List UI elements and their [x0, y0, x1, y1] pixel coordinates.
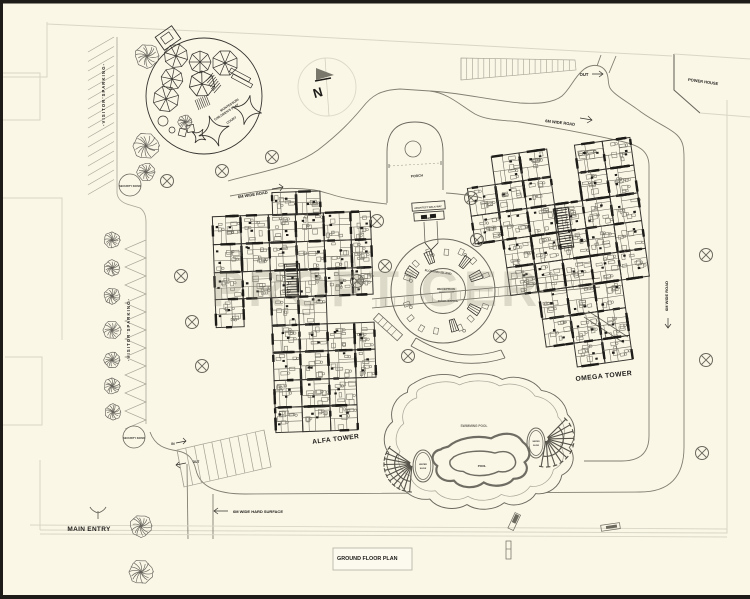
svg-text:6M WIDE HARD SURFACE: 6M WIDE HARD SURFACE [233, 509, 283, 514]
svg-text:SECURITY KIOSK: SECURITY KIOSK [123, 436, 145, 440]
svg-text:6M WIDE ROAD: 6M WIDE ROAD [664, 281, 669, 311]
svg-text:OUT: OUT [193, 460, 200, 464]
svg-text:SLIDE: SLIDE [533, 445, 540, 447]
svg-text:POOL: POOL [478, 464, 487, 468]
svg-text:- V I S I T O R ' S P A R K: - V I S I T O R ' S P A R K I N G - [101, 63, 106, 126]
svg-text:SLIDE: SLIDE [420, 468, 427, 470]
svg-text:GROUND FLOOR PLAN: GROUND FLOOR PLAN [337, 556, 398, 562]
svg-text:WATER: WATER [532, 440, 540, 443]
svg-text:RAMP: RAMP [424, 217, 432, 221]
svg-text:PROPTIGER: PROPTIGER [211, 261, 541, 317]
svg-text:SECURITY KIOSK: SECURITY KIOSK [119, 184, 141, 188]
svg-text:- V I S I T O R ' S P A R K: - V I S I T O R ' S P A R K I N G - [126, 298, 131, 361]
svg-text:OUT: OUT [580, 72, 589, 77]
svg-text:SWIMMING POOL: SWIMMING POOL [461, 424, 488, 428]
svg-text:MAIN ENTRY: MAIN ENTRY [67, 526, 111, 533]
svg-text:WATER: WATER [419, 463, 427, 466]
